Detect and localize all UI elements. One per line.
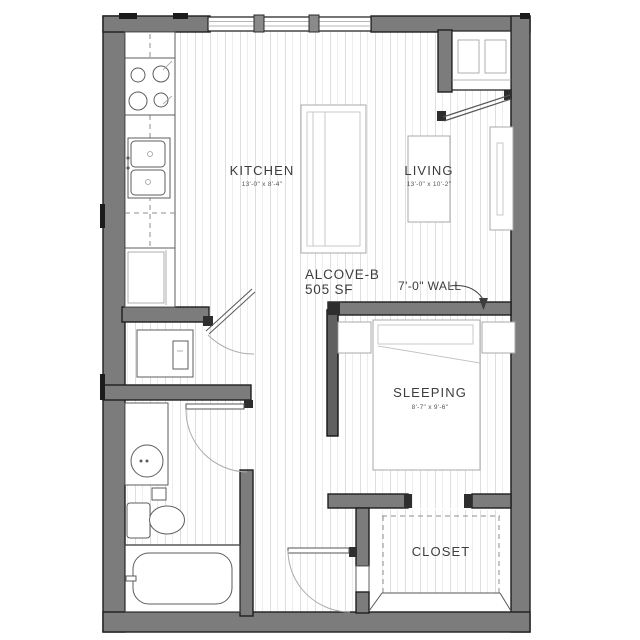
nightstand-left [338,322,371,353]
unit-area-label: 505 SF [305,282,353,297]
closet-floor [369,508,511,612]
kitchen-label: KITCHEN [230,163,295,178]
wall-exterior-bottom [103,612,530,632]
closet-label: CLOSET [412,544,471,559]
wall-closet-top-right [472,494,511,508]
bathtub [125,545,240,612]
media-console [490,127,513,230]
wall-utility-bath [103,385,251,400]
wall-closet-left-upper [356,508,369,566]
wall-bath-hall [240,470,253,616]
door-jamb [504,89,512,100]
sleeping-dims: 8'-7" x 9'-6" [412,404,449,411]
stove [125,58,175,115]
unit-name-label: ALCOVE-B [305,267,380,282]
living-label: LIVING [404,163,453,178]
wall-closet-top-left [328,494,408,508]
wall-closet-left-gap [356,566,369,592]
wall-tick [100,374,105,400]
wall-seven-foot [327,310,338,436]
wall-kitchen-utility [122,307,209,322]
washer-dryer [137,330,193,377]
window-entry [452,31,511,90]
door-jamb [404,494,412,508]
nightstand-right [482,322,515,353]
kitchen-island [301,105,366,253]
door-jamb [244,400,253,408]
wall-closet-left-lower [356,592,369,613]
floor-plan: KITCHEN 13'-0" x 8'-4" LIVING 13'-0" x 1… [0,0,640,640]
wall-tick [173,13,188,19]
bathroom-vanity [125,403,168,500]
door-jamb [349,547,357,557]
door-jamb [464,494,472,508]
wall-exterior-left [103,16,125,632]
wall-tick [119,13,137,19]
wall-note-label: 7'-0" WALL [398,279,461,293]
door-jamb [328,302,340,315]
door-jamb [203,316,213,326]
refrigerator [125,248,175,307]
sleeping-label: SLEEPING [393,385,467,400]
kitchen-dims: 13'-0" x 8'-4" [242,181,283,188]
kitchen-sink [126,138,170,198]
floor-plan-drawing: KITCHEN 13'-0" x 8'-4" LIVING 13'-0" x 1… [0,0,640,640]
living-dims: 13'-0" x 10'-2" [407,181,452,188]
wall-tick [520,13,530,19]
wall-entry-nook [438,30,452,92]
wall-tick [100,204,105,228]
window-main [208,15,371,32]
coffee-table [408,136,450,222]
